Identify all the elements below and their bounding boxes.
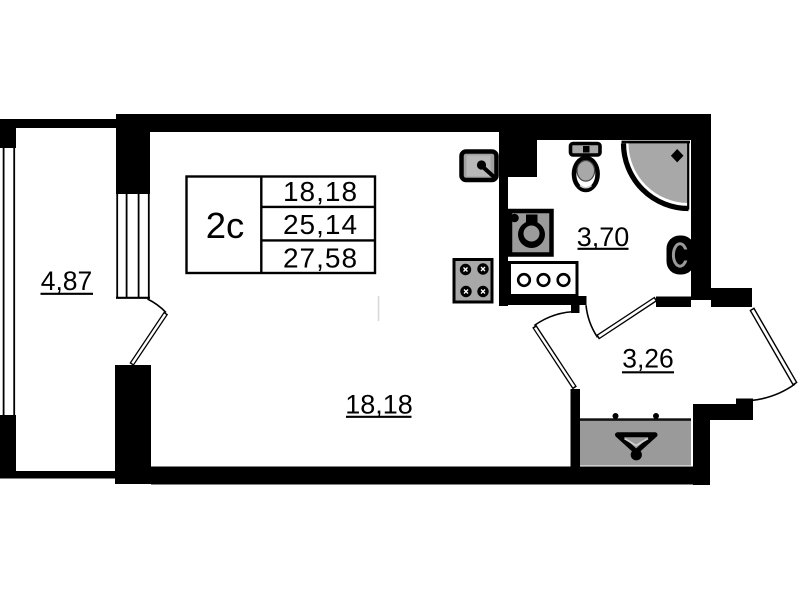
svg-text:18,18: 18,18 [283,176,358,207]
svg-text:3,26: 3,26 [622,344,674,374]
svg-text:25,14: 25,14 [283,209,358,240]
svg-text:3,70: 3,70 [577,222,630,252]
svg-text:2c: 2c [206,205,245,246]
svg-text:27,58: 27,58 [283,243,358,274]
svg-text:4,87: 4,87 [41,266,93,296]
svg-text:18,18: 18,18 [345,390,413,420]
